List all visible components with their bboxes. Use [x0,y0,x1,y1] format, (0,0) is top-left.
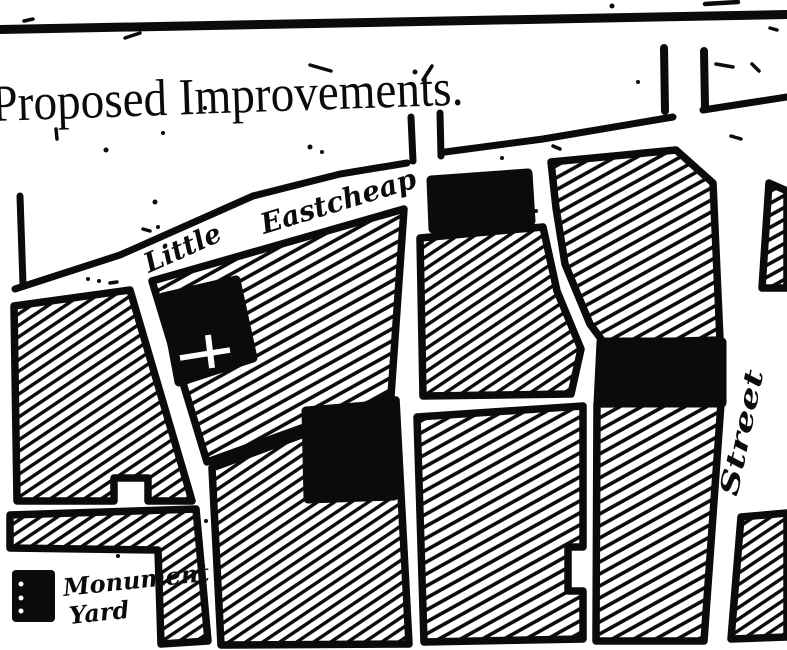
legend-swatch [12,570,55,622]
city-block-center-north [420,227,581,396]
map-title: Proposed Improvements. [0,60,464,133]
building-courtyard-mark-stem [208,335,212,368]
building-footprint-street-front [431,173,531,229]
building-footprint-eastcheap [163,280,253,382]
legend-swatch-dot [19,596,24,601]
city-block-east-north [551,150,720,343]
building-footprint-east-band [598,342,722,403]
map-canvas: Proposed Improvements. Little Eastcheap … [0,0,787,650]
north-lane-center-east-edge [440,113,441,156]
legend-swatch-dot [19,582,24,587]
north-lane-east-west-edge [664,48,665,111]
city-block-east-south [596,403,721,641]
legend-swatch-dot [19,609,24,614]
city-block-east-edge-wedge [762,183,787,288]
city-block-center-south [417,406,583,642]
north-lane-center-west-edge [411,117,413,161]
top-border-rule [0,10,787,34]
west-boundary-line [20,196,23,285]
building-footprint-bottom-center [306,404,394,499]
city-block-southeast-corner [731,513,787,639]
eastcheap-north-edge-east [703,97,787,110]
map-page: Proposed Improvements. Little Eastcheap … [0,0,787,650]
north-lane-east-east-edge [704,51,705,107]
legend-label-line2: Yard [68,595,131,630]
